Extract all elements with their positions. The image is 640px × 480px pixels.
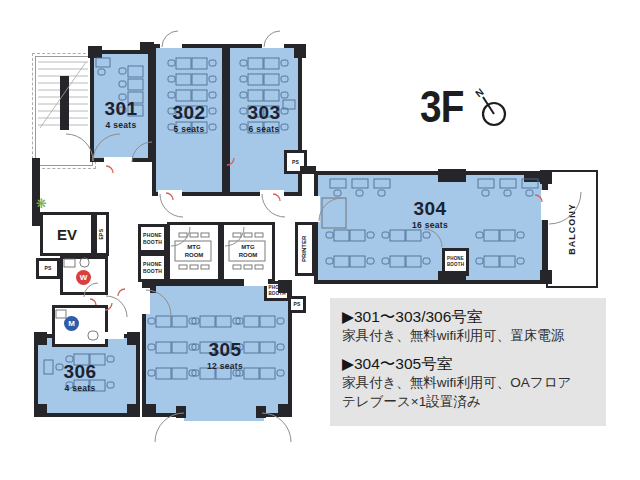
mtg-room-1: MTG ROOM — [167, 222, 221, 282]
ps-label-north: PS — [292, 159, 299, 165]
room-301 — [90, 50, 152, 162]
phone-booth-1-label: PHONE BOOTH — [141, 232, 164, 245]
phone-booth-2-label: PHONE BOOTH — [141, 261, 164, 274]
pillar — [438, 169, 466, 182]
pillar — [140, 42, 154, 54]
door-opening — [260, 190, 284, 198]
pillar — [294, 44, 306, 58]
pillar — [278, 404, 292, 417]
elevator-label: EV — [57, 226, 77, 243]
eps-shaft: EPS — [94, 212, 109, 256]
printer-room: PRINTER — [295, 222, 315, 276]
window-opening — [160, 42, 182, 48]
window-opening — [262, 42, 284, 48]
floor-plan: BALCONY EV EPS PS W M PHONE BOOTH PHONE … — [0, 0, 640, 480]
pillar — [34, 332, 47, 345]
pillar — [127, 332, 140, 345]
notes-heading-2: ▶304〜305号室 — [342, 354, 594, 374]
door-opening — [102, 332, 124, 339]
mens-toilet — [52, 305, 108, 347]
room-302 — [152, 44, 226, 196]
compass-icon: N — [474, 84, 514, 130]
notes-group-2: ▶304〜305号室 家具付き、無料wifi利用可、OAフロア テレブース×1設… — [342, 354, 594, 412]
pillar — [278, 280, 292, 293]
phone-booth-304-label: PHONE BOOTH — [445, 256, 466, 267]
pillar — [88, 46, 102, 58]
womens-toilet-badge: W — [76, 270, 91, 285]
elevator: EV — [40, 212, 94, 256]
room-305 — [142, 282, 292, 417]
pillar — [142, 404, 156, 417]
phone-booth-1: PHONE BOOTH — [138, 224, 167, 253]
door-opening — [541, 190, 549, 220]
room-304 — [314, 171, 546, 284]
eps-label: EPS — [98, 229, 104, 240]
ps-label-west: PS — [44, 265, 51, 271]
pillar — [176, 406, 186, 418]
notes-body-2: 家具付き、無料wifi利用可、OAフロア — [342, 374, 594, 393]
stairwell — [35, 56, 93, 166]
balcony-label: BALCONY — [567, 203, 577, 255]
phone-booth-2: PHONE BOOTH — [138, 253, 167, 282]
notes-body-3: テレブース×1設置済み — [342, 393, 594, 412]
pillar — [256, 406, 266, 418]
wall-segment — [300, 166, 316, 174]
pipe-shaft-west: PS — [36, 258, 60, 279]
pillar — [127, 404, 140, 417]
door-opening — [142, 288, 150, 314]
mens-toilet-badge: M — [64, 316, 79, 331]
door-opening — [104, 157, 132, 164]
notes-box: ▶301〜303/306号室 家具付き、無料wifi利用可、置床電源 ▶304〜… — [330, 298, 606, 426]
notes-body-1: 家具付き、無料wifi利用可、置床電源 — [342, 327, 594, 346]
pillar — [438, 271, 466, 284]
notes-heading-1: ▶301〜303/306号室 — [342, 307, 594, 327]
floor-title: 3F — [420, 82, 463, 132]
pillar — [34, 404, 47, 417]
pillar — [540, 270, 552, 284]
wall-segment — [32, 158, 40, 226]
printer-label: PRINTER — [301, 236, 309, 262]
pillar — [540, 170, 552, 184]
room-305-bay — [184, 409, 264, 421]
notes-group-1: ▶301〜303/306号室 家具付き、無料wifi利用可、置床電源 — [342, 307, 594, 346]
door-opening — [244, 279, 268, 286]
pipe-shaft-south: PS — [288, 296, 306, 313]
mtg-room-1-label: MTG ROOM — [179, 244, 209, 260]
ps-label-south: PS — [293, 301, 300, 307]
mtg-room-2: MTG ROOM — [221, 222, 275, 282]
door-opening — [312, 196, 320, 222]
door-opening — [158, 190, 182, 198]
balcony: BALCONY — [546, 170, 598, 288]
mtg-room-2-label: MTG ROOM — [233, 244, 263, 260]
